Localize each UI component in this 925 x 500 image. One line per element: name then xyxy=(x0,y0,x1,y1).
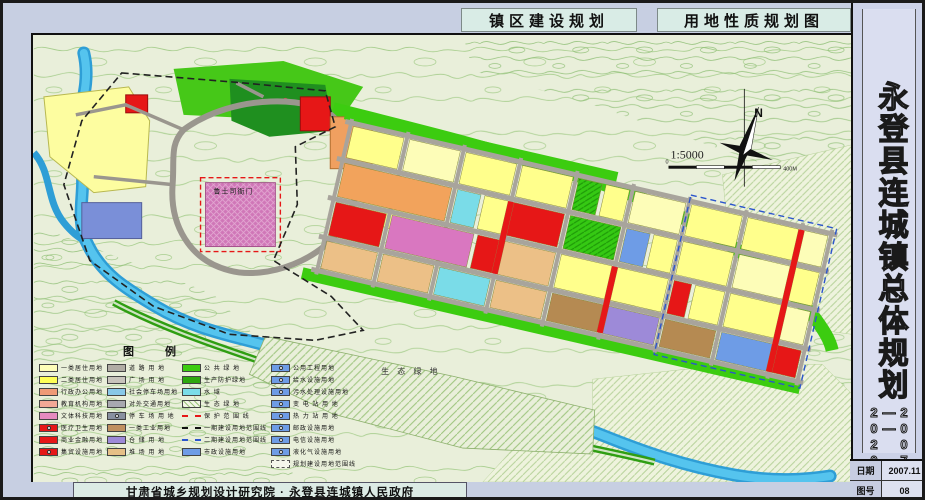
legend-item: 规划建设用地范围线 xyxy=(271,459,356,468)
eco-label: 生 态 绿 地 xyxy=(381,366,440,376)
sidebar-panel: 永登县连城镇总体规划 2007——2020 xyxy=(862,9,916,453)
legend-swatch xyxy=(182,448,201,456)
legend-item: 电信设施用地 xyxy=(271,435,356,444)
legend-item: 生产防护绿地 xyxy=(182,375,267,384)
legend-item: 一类居住用地 xyxy=(39,363,103,372)
facility-icon xyxy=(47,450,51,454)
legend-label: 公 共 绿 地 xyxy=(204,363,240,372)
legend-swatch xyxy=(182,415,201,417)
legend-item: 邮政设施用地 xyxy=(271,423,356,432)
legend-swatch xyxy=(182,376,201,384)
legend-label: 热 力 站 用 地 xyxy=(293,411,339,420)
facility-icon xyxy=(279,366,283,370)
legend-label: 教育机构用地 xyxy=(61,399,103,408)
facility-icon xyxy=(279,402,283,406)
legend-item: 市政设施用地 xyxy=(182,447,267,456)
legend-swatch xyxy=(271,412,290,420)
title-right-text: 用地性质规划图 xyxy=(684,10,824,31)
legend-swatch xyxy=(182,427,201,429)
legend-swatch xyxy=(182,388,201,396)
legend-label: 规划建设用地范围线 xyxy=(293,459,356,468)
legend-item: 变 电 站 用 地 xyxy=(271,399,356,408)
bottom-strip: 甘肃省城乡规划设计研究院 · 永登县连城镇人民政府 xyxy=(31,482,853,500)
legend-label: 广 场 用 地 xyxy=(129,375,165,384)
legend-item: 二期建设用地范围线 xyxy=(182,435,267,444)
legend: 图 例 一类居住用地二类居住用地行政办公用地教育机构用地文体科技用地医疗卫生用地… xyxy=(39,343,307,468)
legend-item: 道 路 用 地 xyxy=(107,363,178,372)
map-canvas: 鲁土司衙门 xyxy=(31,33,855,484)
legend-swatch xyxy=(271,364,290,372)
legend-item: 集贸设施用地 xyxy=(39,447,103,456)
parcel-red-north xyxy=(300,97,330,131)
legend-swatch xyxy=(39,448,58,456)
figure-number-value: 08 xyxy=(882,481,925,500)
legend-title: 图 例 xyxy=(123,343,307,359)
legend-label: 邮政设施用地 xyxy=(293,423,335,432)
legend-item: 仓 储 用 地 xyxy=(107,435,178,444)
legend-swatch xyxy=(271,376,290,384)
facility-icon xyxy=(279,426,283,430)
legend-label: 集贸设施用地 xyxy=(61,447,103,456)
legend-swatch xyxy=(107,400,126,408)
legend-item: 水 域 xyxy=(182,387,267,396)
facility-icon xyxy=(279,414,283,418)
legend-label: 污水处理设施用地 xyxy=(293,387,349,396)
facility-icon xyxy=(115,414,119,418)
legend-label: 道 路 用 地 xyxy=(129,363,165,372)
legend-item: 医疗卫生用地 xyxy=(39,423,103,432)
legend-swatch xyxy=(39,364,58,372)
legend-label: 社会停车场用地 xyxy=(129,387,178,396)
legend-column-4: 公用工程用地给水设施用地污水处理设施用地变 电 站 用 地热 力 站 用 地邮政… xyxy=(271,363,356,468)
scale-bar xyxy=(668,166,780,169)
legend-label: 停 车 场 用 地 xyxy=(129,411,175,420)
facility-icon xyxy=(279,450,283,454)
legend-label: 二类居住用地 xyxy=(61,375,103,384)
legend-item: 文体科技用地 xyxy=(39,411,103,420)
legend-item: 热 力 站 用 地 xyxy=(271,411,356,420)
drawing-title-vertical: 永登县连城镇总体规划 xyxy=(871,81,908,401)
legend-item: 商业金融用地 xyxy=(39,435,103,444)
plan-sheet: 镇区建设规划 用地性质规划图 xyxy=(0,0,925,500)
legend-label: 文体科技用地 xyxy=(61,411,103,420)
legend-item: 二类居住用地 xyxy=(39,375,103,384)
legend-label: 堆 场 用 地 xyxy=(129,447,165,456)
legend-swatch xyxy=(107,376,126,384)
legend-label: 仓 储 用 地 xyxy=(129,435,165,444)
legend-swatch xyxy=(39,424,58,432)
legend-label: 保 护 范 围 线 xyxy=(204,411,250,420)
legend-swatch xyxy=(39,388,58,396)
credit-box: 甘肃省城乡规划设计研究院 · 永登县连城镇人民政府 xyxy=(73,482,467,500)
legend-swatch xyxy=(107,388,126,396)
legend-swatch xyxy=(271,460,290,468)
legend-swatch xyxy=(107,448,126,456)
legend-item: 对外交通用地 xyxy=(107,399,178,408)
legend-swatch xyxy=(271,424,290,432)
legend-label: 一期建设用地范围线 xyxy=(204,423,267,432)
heritage-label: 鲁土司衙门 xyxy=(214,187,254,196)
title-block-sidebar: 永登县连城镇总体规划 2007——2020 日期 2007.11 图号 08 xyxy=(851,3,925,500)
legend-label: 生 态 绿 地 xyxy=(204,399,240,408)
legend-grid: 一类居住用地二类居住用地行政办公用地教育机构用地文体科技用地医疗卫生用地商业金融… xyxy=(39,363,307,468)
page-title-left: 镇区建设规划 xyxy=(461,8,637,32)
legend-column-3: 公 共 绿 地生产防护绿地水 域生 态 绿 地保 护 范 围 线一期建设用地范围… xyxy=(182,363,267,468)
legend-swatch xyxy=(182,439,201,441)
title-left-text: 镇区建设规划 xyxy=(489,10,609,31)
legend-label: 水 域 xyxy=(204,387,221,396)
legend-swatch xyxy=(39,412,58,420)
legend-label: 二期建设用地范围线 xyxy=(204,435,267,444)
legend-item: 一类工业用地 xyxy=(107,423,178,432)
legend-item: 一期建设用地范围线 xyxy=(182,423,267,432)
legend-swatch xyxy=(107,364,126,372)
legend-label: 行政办公用地 xyxy=(61,387,103,396)
scalebar-end: 400M xyxy=(783,167,797,173)
facility-icon xyxy=(47,426,51,430)
scalebar-start: 0 xyxy=(666,160,669,166)
legend-swatch xyxy=(182,364,201,372)
legend-label: 对外交通用地 xyxy=(129,399,171,408)
legend-swatch xyxy=(39,436,58,444)
legend-label: 医疗卫生用地 xyxy=(61,423,103,432)
legend-label: 市政设施用地 xyxy=(204,447,246,456)
legend-item: 给水设施用地 xyxy=(271,375,356,384)
legend-item: 广 场 用 地 xyxy=(107,375,178,384)
legend-item: 停 车 场 用 地 xyxy=(107,411,178,420)
legend-swatch xyxy=(39,376,58,384)
legend-label: 一类居住用地 xyxy=(61,363,103,372)
facility-icon xyxy=(279,378,283,382)
legend-item: 教育机构用地 xyxy=(39,399,103,408)
legend-swatch xyxy=(107,412,126,420)
legend-item: 污水处理设施用地 xyxy=(271,387,356,396)
legend-label: 公用工程用地 xyxy=(293,363,335,372)
legend-label: 一类工业用地 xyxy=(129,423,171,432)
facility-icon xyxy=(279,438,283,442)
legend-item: 公 共 绿 地 xyxy=(182,363,267,372)
legend-swatch xyxy=(182,400,201,408)
parcel-nw-blue xyxy=(82,203,142,239)
legend-label: 液化气设施用地 xyxy=(293,447,342,456)
legend-label: 生产防护绿地 xyxy=(204,375,246,384)
north-label: N xyxy=(754,106,763,120)
legend-item: 液化气设施用地 xyxy=(271,447,356,456)
legend-column-2: 道 路 用 地广 场 用 地社会停车场用地对外交通用地停 车 场 用 地一类工业… xyxy=(107,363,178,468)
legend-label: 商业金融用地 xyxy=(61,435,103,444)
legend-item: 堆 场 用 地 xyxy=(107,447,178,456)
figure-number-label: 图号 xyxy=(850,481,882,500)
legend-item: 行政办公用地 xyxy=(39,387,103,396)
legend-label: 给水设施用地 xyxy=(293,375,335,384)
date-row: 日期 2007.11 xyxy=(850,461,925,481)
scale-text: 1:5000 xyxy=(670,148,703,162)
legend-item: 生 态 绿 地 xyxy=(182,399,267,408)
title-block-table: 日期 2007.11 图号 08 xyxy=(850,459,925,500)
legend-swatch xyxy=(107,436,126,444)
date-label: 日期 xyxy=(850,461,882,480)
date-value: 2007.11 xyxy=(882,461,925,480)
legend-swatch xyxy=(107,424,126,432)
legend-swatch xyxy=(271,388,290,396)
figure-number-row: 图号 08 xyxy=(850,481,925,500)
legend-item: 公用工程用地 xyxy=(271,363,356,372)
legend-swatch xyxy=(271,436,290,444)
legend-label: 变 电 站 用 地 xyxy=(293,399,339,408)
legend-label: 电信设施用地 xyxy=(293,435,335,444)
credit-text: 甘肃省城乡规划设计研究院 · 永登县连城镇人民政府 xyxy=(126,484,414,500)
legend-swatch xyxy=(271,400,290,408)
legend-item: 保 护 范 围 线 xyxy=(182,411,267,420)
legend-item: 社会停车场用地 xyxy=(107,387,178,396)
page-title-right: 用地性质规划图 xyxy=(657,8,851,32)
facility-icon xyxy=(279,390,283,394)
legend-swatch xyxy=(39,400,58,408)
legend-column-1: 一类居住用地二类居住用地行政办公用地教育机构用地文体科技用地医疗卫生用地商业金融… xyxy=(39,363,103,468)
legend-swatch xyxy=(271,448,290,456)
